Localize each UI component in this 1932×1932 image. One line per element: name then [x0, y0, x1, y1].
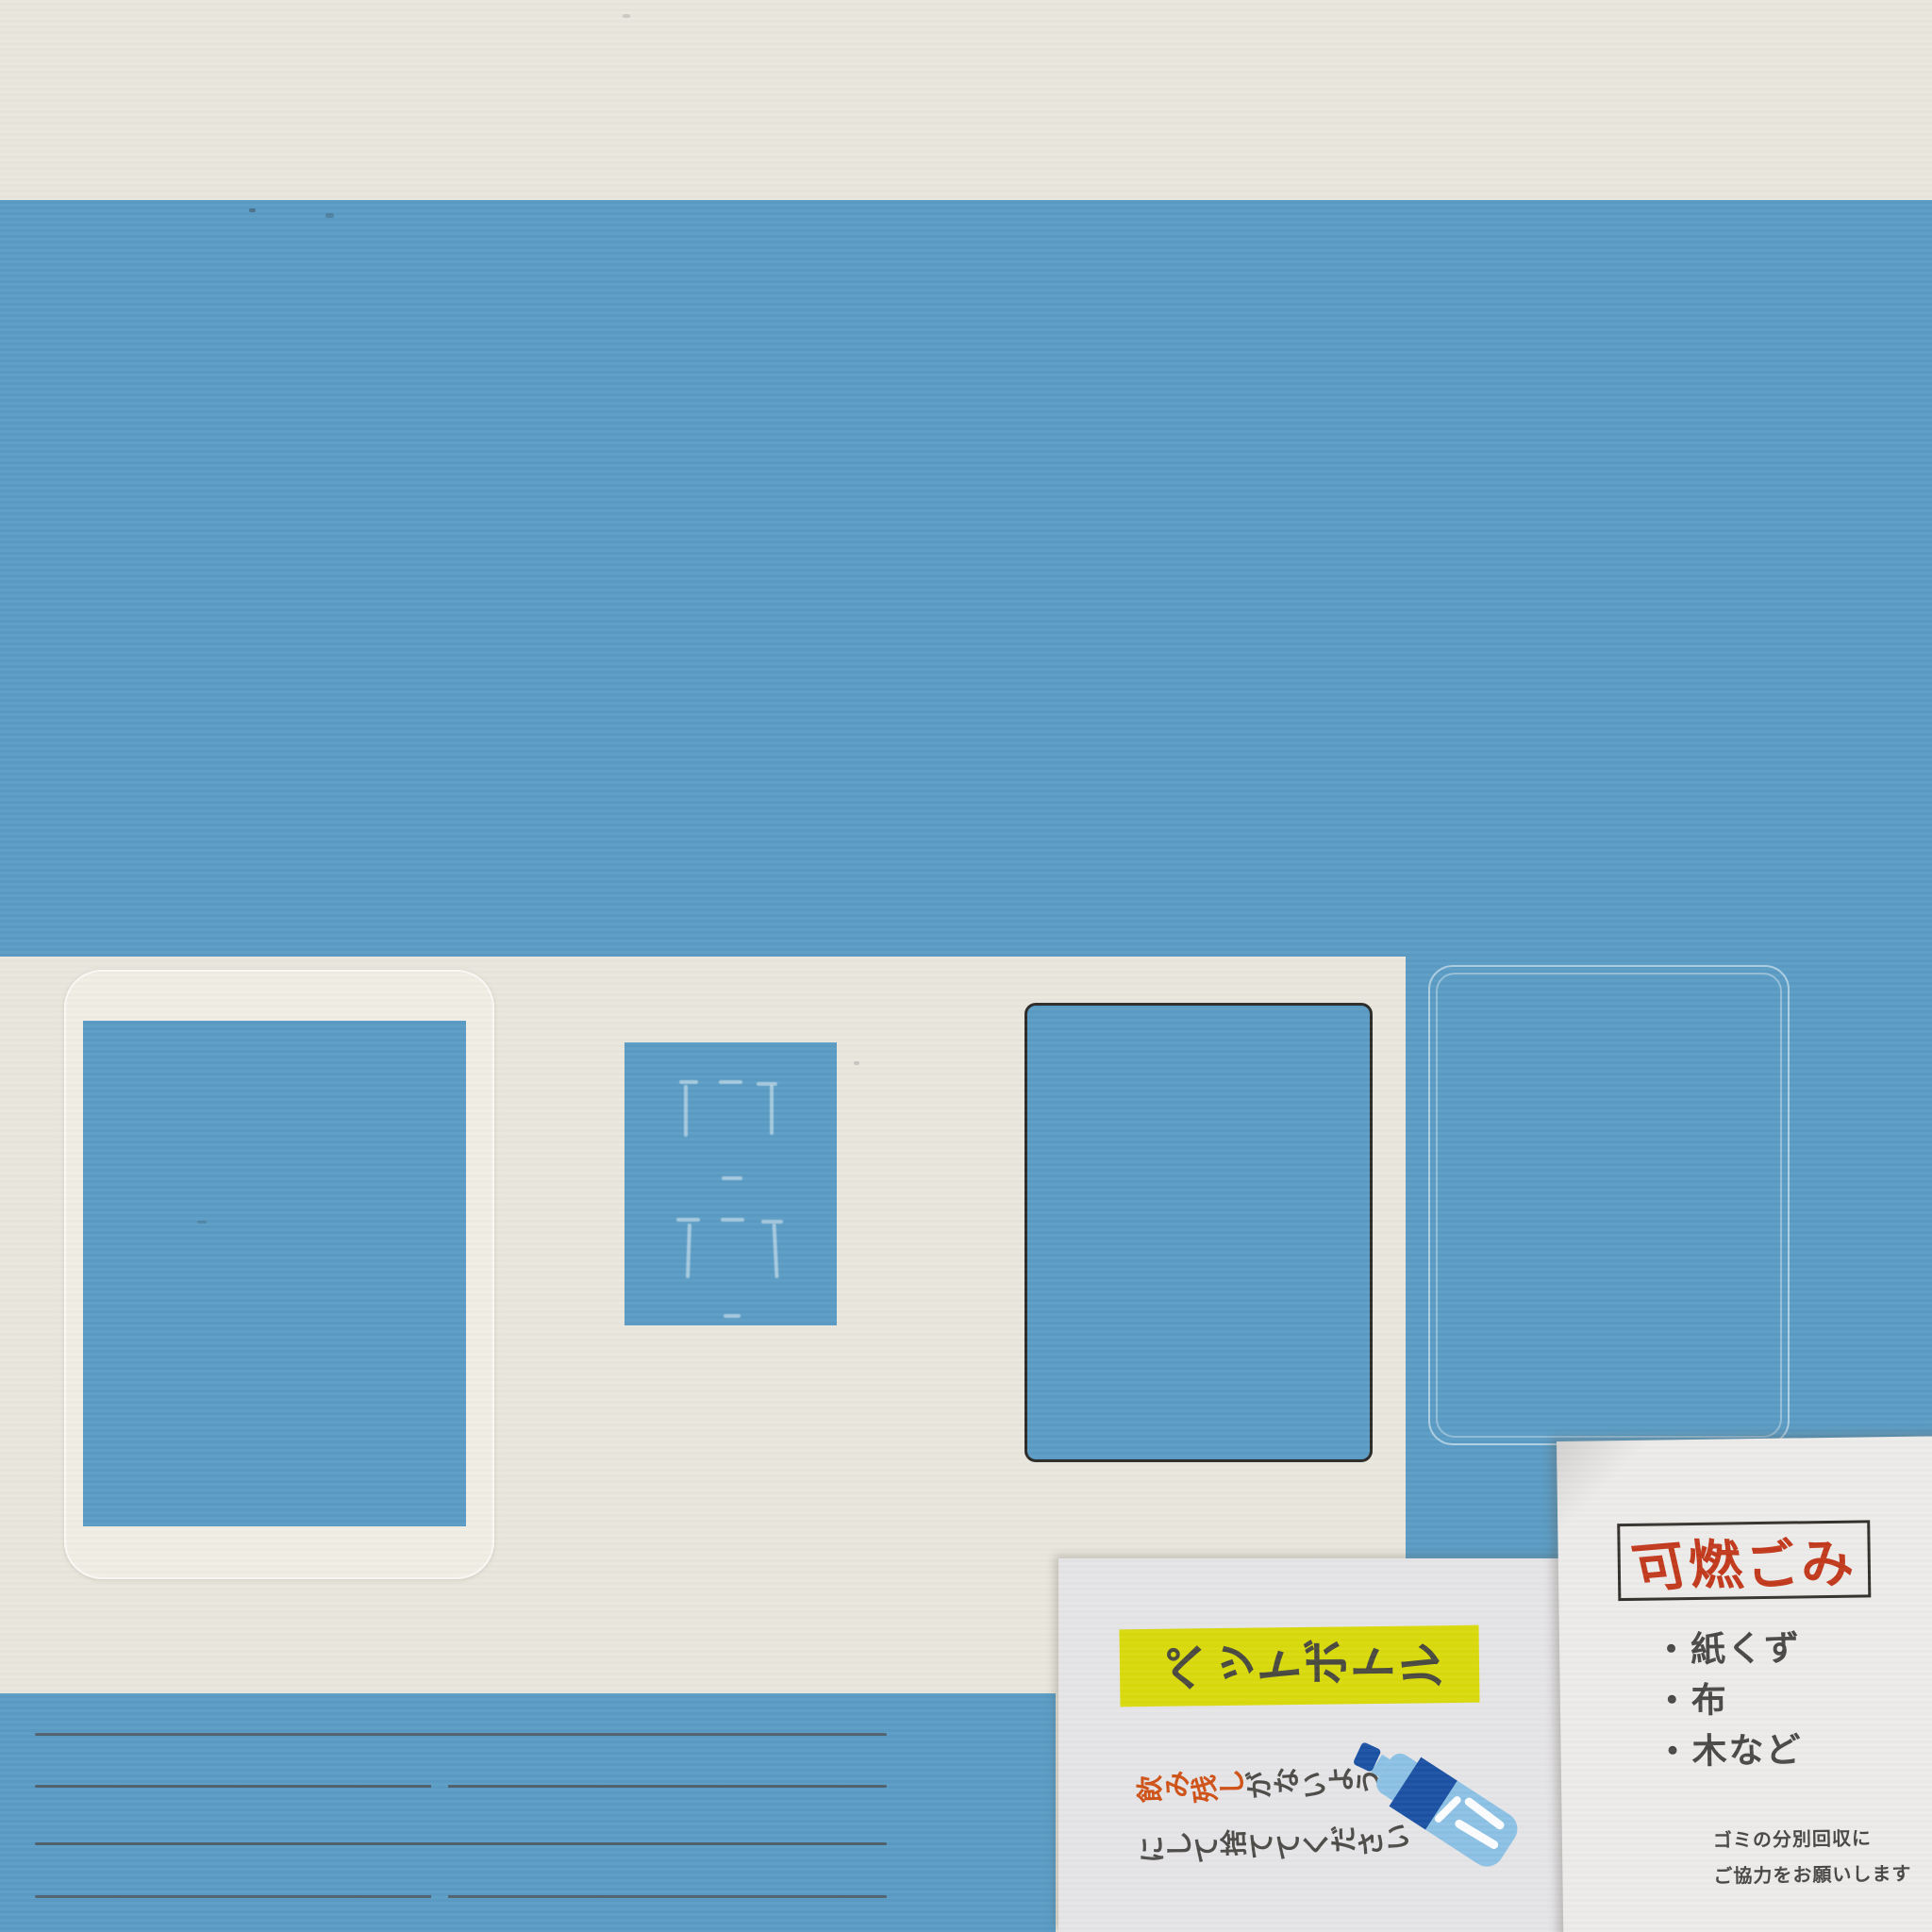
paint-speck [854, 1061, 859, 1065]
list-item: ・木など [1655, 1724, 1803, 1777]
pet-bottle-title-band: ペットボトル [1120, 1625, 1480, 1707]
blue-rectangle-large [83, 1021, 466, 1526]
list-item: ・紙くず [1654, 1623, 1802, 1675]
chalk-mark [686, 1224, 691, 1278]
faint-outline-inner [1436, 973, 1782, 1438]
chalk-mark [684, 1085, 688, 1137]
chalk-mark [772, 1224, 778, 1278]
burnable-title-box: 可燃ごみ [1617, 1520, 1871, 1601]
burnable-garbage-poster: 可燃ごみ ・紙くず ・布 ・木など ゴミの分別回収に ご協力をお願いします [1557, 1436, 1932, 1932]
chalk-mark [757, 1082, 777, 1086]
rule-line [35, 1842, 887, 1845]
chalk-mark [770, 1085, 774, 1135]
chalk-mark [676, 1218, 700, 1222]
footer-line: ゴミの分別回収に [1713, 1821, 1912, 1859]
wall-scene: ペットボトル 飲み残しがないよう にして捨ててください 可燃ごみ [0, 0, 1932, 1932]
paint-speck [197, 1221, 207, 1224]
pet-bottle-title: ペットボトル [1158, 1630, 1441, 1702]
chalk-mark [679, 1080, 698, 1084]
footer-line: ご協力をお願いします [1713, 1857, 1912, 1895]
paint-speck [623, 14, 630, 18]
blue-rectangle-small [625, 1042, 837, 1325]
list-item: ・布 [1654, 1674, 1802, 1726]
burnable-footer: ゴミの分別回収に ご協力をお願いします [1713, 1821, 1912, 1895]
burnable-items-list: ・紙くず ・布 ・木など [1654, 1623, 1803, 1777]
faint-outline-rectangle [1428, 965, 1790, 1445]
chalk-mark [721, 1218, 744, 1222]
sticker-frame [64, 970, 494, 1579]
blue-rectangle-outlined [1024, 1003, 1373, 1462]
ruled-notice-panel [0, 1693, 1056, 1932]
paint-speck [249, 208, 256, 212]
rule-line [35, 1895, 887, 1898]
chalk-mark [724, 1314, 741, 1318]
pet-bottle-poster: ペットボトル 飲み残しがないよう にして捨ててください [1058, 1558, 1574, 1932]
pet-note-highlight: 飲み残し [1134, 1774, 1244, 1807]
rule-line [35, 1733, 887, 1736]
chalk-mark [722, 1176, 742, 1180]
paint-speck [325, 213, 334, 218]
pet-note-line-2: にして捨ててください [1136, 1821, 1410, 1870]
rule-line [35, 1785, 887, 1788]
burnable-title: 可燃ごみ [1627, 1521, 1861, 1600]
blue-paint-band [0, 200, 1932, 957]
chalk-mark [719, 1080, 742, 1084]
